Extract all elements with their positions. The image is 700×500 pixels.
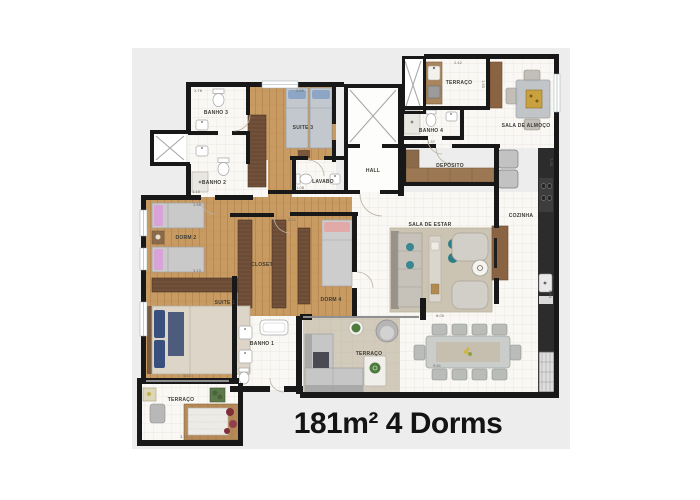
room-label-deposito: DEPÓSITO — [436, 161, 464, 169]
nightstand-dorm2 — [152, 231, 164, 244]
dim-dorm2-top: 2.86 — [193, 203, 202, 207]
bed-dorm4 — [322, 220, 352, 286]
room-label-dorm2: DORM 2 — [176, 235, 197, 241]
terrace-planter — [210, 388, 225, 402]
kitchen-counter — [538, 148, 554, 392]
dim-suite1: 5.10 — [183, 374, 192, 378]
terrace-counter — [426, 62, 442, 104]
sofa-living — [391, 231, 422, 309]
armchair-a — [452, 233, 488, 261]
dim-banho3: 2.76 — [194, 89, 203, 93]
room-label-dorm4: DORM 4 — [321, 297, 342, 303]
terrace-chair — [150, 404, 165, 423]
wood-feature-wall — [490, 62, 502, 108]
floor-plan-svg: BANHO 3 SUITE 3 BANHO 2 LAVABO HALL BANH… — [0, 0, 700, 500]
dim-terraco-top-h: 1.65 — [481, 80, 485, 88]
dim-suite3: 2.85 — [296, 89, 304, 93]
dim-dining: 9.61 — [433, 364, 441, 368]
room-label-lavabo: LAVABO — [312, 179, 334, 185]
room-label-terraco-top: TERRAÇO — [446, 80, 472, 86]
room-label-suite3: SUITE 3 — [293, 125, 314, 131]
dim-banho4: 1.37 — [427, 140, 435, 144]
bed-suite3-a — [286, 88, 308, 148]
dim-lavabo: 1.08 — [296, 186, 305, 190]
wardrobe-closet-left — [238, 220, 252, 308]
dim-dorm2-bottom: 3.15 — [193, 269, 201, 273]
wardrobe-dorm4 — [298, 228, 310, 304]
room-label-sala-almoco: SALA DE ALMOÇO — [502, 123, 551, 129]
terrace-side-table — [143, 388, 156, 401]
terrace-coffee-table — [364, 356, 386, 386]
room-label-terraco-suite: TERRAÇO — [168, 397, 194, 403]
room-label-banho4: BANHO 4 — [419, 128, 443, 134]
dim-terraco-suite: 3.71 — [180, 435, 188, 439]
room-label-suite1: SUITE 1 — [215, 300, 236, 306]
tv-wall — [492, 226, 508, 280]
dim-terraco-top: 2.42 — [454, 61, 462, 65]
room-label-closet: CLOSET — [251, 262, 273, 268]
oven-tower — [539, 352, 554, 392]
room-label-banho2: BANHO 2 — [202, 180, 226, 186]
terrace-plant — [349, 321, 363, 335]
terrace-round-chair — [376, 320, 398, 342]
wardrobe-closet-right — [272, 220, 286, 308]
room-label-cozinha: COZINHA — [509, 213, 534, 219]
caption: 181m² 4 Dorms — [294, 407, 503, 440]
room-label-banho3: BANHO 3 — [204, 110, 228, 116]
dim-right-upper: 7.05 — [549, 158, 553, 166]
floor-plan-image: BANHO 3 SUITE 3 BANHO 2 LAVABO HALL BANH… — [0, 0, 700, 500]
room-label-hall: HALL — [366, 168, 380, 174]
lounger — [188, 408, 228, 435]
dim-sala-estar: 6.00 — [436, 314, 445, 318]
room-label-sala-estar: SALA DE ESTAR — [409, 222, 452, 228]
armchair-b — [452, 281, 488, 309]
wardrobe-suite3 — [248, 115, 266, 187]
side-table — [472, 260, 488, 276]
suite-terrace-deck — [184, 404, 240, 440]
room-label-banho1: BANHO 1 — [250, 341, 274, 347]
room-label-terraco-living: TERRAÇO — [356, 351, 382, 357]
bed-suite3-b — [310, 88, 332, 148]
dim-banho2: 1.10 — [192, 190, 201, 194]
dim-right-mid: 4.54 — [548, 290, 552, 299]
dim-closet: 2.21 — [288, 218, 296, 222]
